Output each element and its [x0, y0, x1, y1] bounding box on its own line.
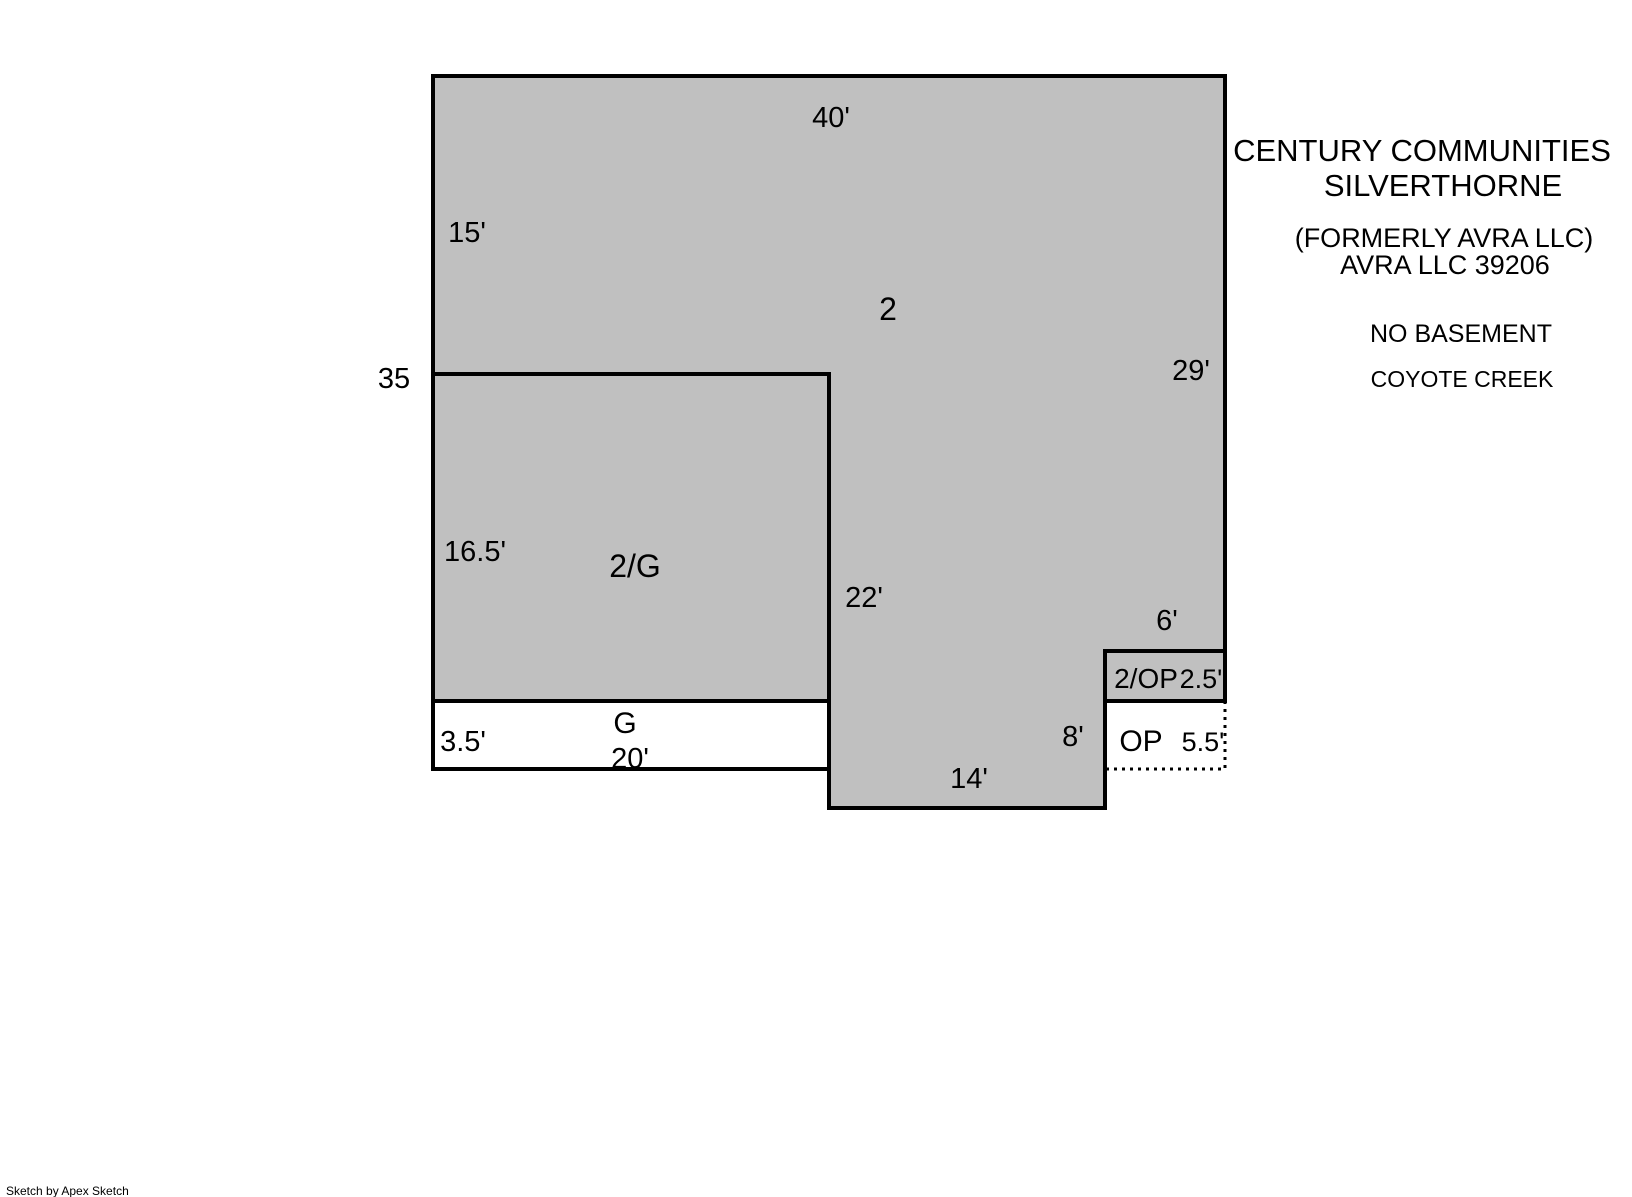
subtitle-line-1: (FORMERLY AVRA LLC) [1295, 223, 1594, 253]
dim-top-width: 40' [812, 102, 850, 134]
title-line-1: CENTURY COMMUNITIES [1233, 133, 1611, 168]
title-line-2: SILVERTHORNE [1324, 168, 1562, 203]
dim-right-upper: 29' [1172, 355, 1210, 387]
dim-left-middle: 16.5' [444, 536, 506, 568]
label-area-second-floor: 2 [879, 291, 897, 327]
dim-left-upper: 15' [448, 217, 486, 249]
dim-porch-upper-height: 2.5' [1180, 664, 1223, 694]
label-area-open-porch: OP [1119, 725, 1162, 758]
dim-porch-height: 5.5' [1182, 727, 1225, 757]
dim-interior-vertical: 22' [845, 582, 883, 614]
dim-wall-lower: 8' [1062, 721, 1084, 753]
label-area-second-over-porch: 2/OP [1114, 663, 1178, 694]
sketch-page: 40' 15' 29' 35 16.5' 22' 6' 2.5' 8' 5.5'… [0, 0, 1632, 1197]
note-community-name: COYOTE CREEK [1371, 366, 1554, 392]
dim-left-lower: 3.5' [440, 726, 486, 758]
label-area-second-over-garage: 2/G [609, 548, 661, 584]
floorplan-drawing: 40' 15' 29' 35 16.5' 22' 6' 2.5' 8' 5.5'… [0, 0, 1632, 1197]
dim-porch-top: 6' [1156, 605, 1178, 637]
note-no-basement: NO BASEMENT [1370, 320, 1552, 348]
subtitle-line-2: AVRA LLC 39206 [1340, 250, 1550, 280]
label-area-garage: G [613, 707, 636, 740]
dim-left-total: 35 [378, 363, 410, 395]
sketch-credit: Sketch by Apex Sketch [6, 1184, 129, 1197]
dim-garage-width: 20' [611, 743, 649, 775]
dim-bottom-center: 14' [950, 763, 988, 795]
